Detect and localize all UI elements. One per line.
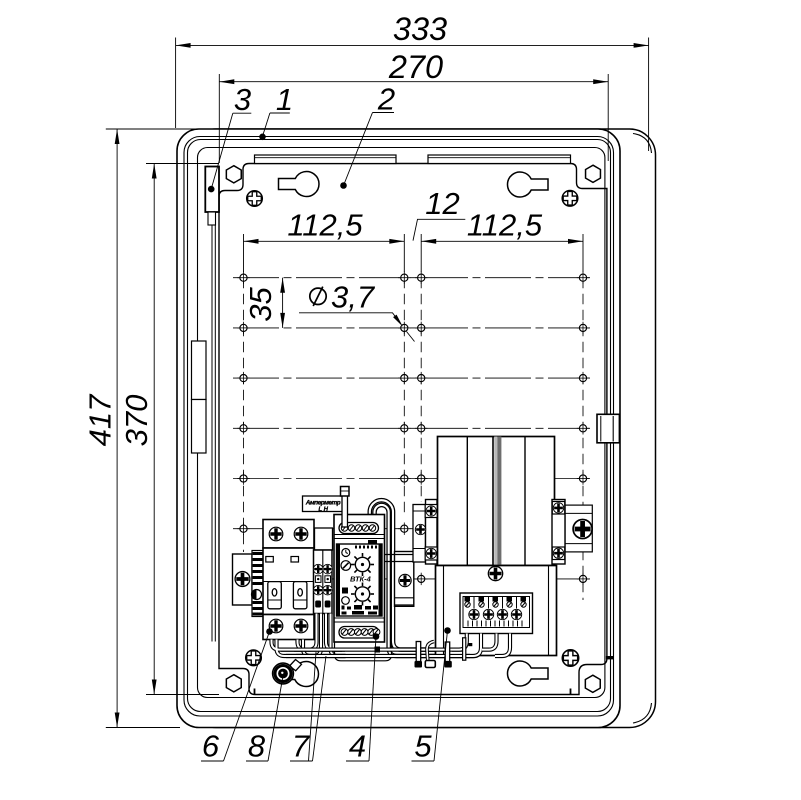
svg-text:4: 4	[349, 729, 366, 764]
svg-text:ВТК-4: ВТК-4	[350, 575, 372, 584]
svg-text:417: 417	[83, 393, 118, 446]
svg-text:112,5: 112,5	[467, 208, 543, 243]
svg-text:1: 1	[276, 82, 293, 117]
svg-text:3,7: 3,7	[331, 280, 376, 315]
svg-text:7: 7	[292, 729, 311, 764]
svg-text:6: 6	[202, 729, 220, 764]
svg-text:12: 12	[425, 186, 459, 221]
svg-text:L Н: L Н	[318, 507, 328, 513]
svg-text:112,5: 112,5	[287, 208, 363, 243]
svg-text:2: 2	[377, 82, 395, 117]
svg-text:333: 333	[393, 11, 447, 47]
svg-text:35: 35	[243, 287, 278, 322]
svg-text:5: 5	[414, 729, 432, 764]
svg-text:370: 370	[119, 395, 154, 447]
svg-text:270: 270	[388, 49, 443, 85]
svg-text:8: 8	[248, 729, 266, 764]
svg-text:Амперметр: Амперметр	[305, 500, 341, 507]
svg-text:3: 3	[234, 82, 251, 117]
